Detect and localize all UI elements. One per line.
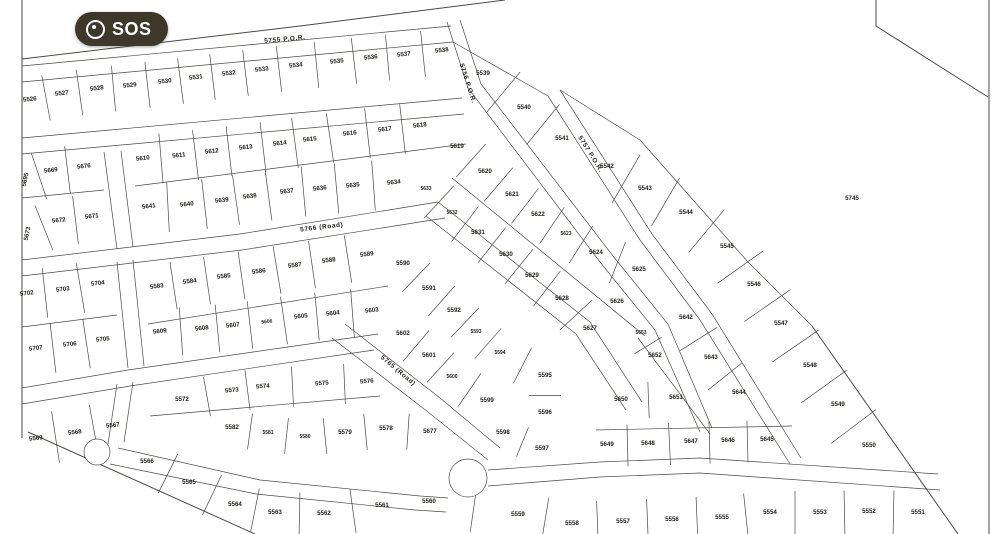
lot-divider — [291, 367, 293, 407]
lot-label-5614: 5614 — [273, 139, 288, 147]
lot-label-5650: 5650 — [614, 396, 628, 403]
lot-label-5560: 5560 — [422, 498, 436, 505]
lot-label-5593: 5593 — [470, 329, 481, 335]
lot-divider — [315, 293, 319, 341]
lot-divider — [276, 46, 281, 92]
lot-label-5600: 5600 — [446, 374, 457, 380]
sos-badge[interactable]: SOS — [75, 12, 168, 46]
lot-divider — [647, 499, 649, 534]
parcel-line — [560, 90, 801, 458]
lot-divider — [893, 491, 894, 534]
lot-label-5569: 5569 — [29, 434, 44, 442]
lot-label-5607: 5607 — [226, 321, 241, 329]
parcel-line — [118, 448, 448, 498]
lot-label-5610: 5610 — [136, 154, 151, 162]
lot-divider — [202, 179, 208, 229]
lot-label-5623: 5623 — [560, 231, 571, 237]
lot-label-5598: 5598 — [496, 429, 510, 436]
lot-label-5629: 5629 — [525, 272, 539, 279]
lot-label-5613: 5613 — [239, 143, 254, 151]
lot-label-5561: 5561 — [375, 502, 389, 509]
lot-label-5599: 5599 — [480, 397, 494, 404]
lot-label-5639: 5639 — [215, 196, 230, 204]
lot-label-5540: 5540 — [517, 104, 531, 111]
lot-label-5563: 5563 — [268, 509, 282, 516]
lot-label-5611: 5611 — [172, 151, 187, 159]
lot-label-5531: 5531 — [189, 73, 204, 81]
lot-label-5574: 5574 — [256, 382, 271, 390]
lot-label-5627: 5627 — [583, 325, 597, 332]
lot-label-5606: 5606 — [261, 318, 273, 325]
lot-label-5616: 5616 — [343, 129, 358, 137]
lot-divider — [243, 50, 249, 96]
lot-divider — [372, 161, 376, 211]
lot-label-5632: 5632 — [446, 210, 457, 216]
lot-divider — [597, 501, 599, 534]
lot-divider — [385, 35, 389, 81]
parcel-line — [124, 382, 133, 442]
lot-label-5537: 5537 — [397, 50, 412, 58]
lot-divider — [314, 42, 318, 88]
lot-divider — [232, 175, 239, 224]
lot-label-5587: 5587 — [288, 261, 303, 270]
lot-label-5572: 5572 — [175, 396, 189, 403]
lot-divider — [831, 410, 876, 444]
lot-label-5552: 5552 — [862, 508, 876, 515]
lot-divider — [251, 488, 260, 531]
lot-divider — [178, 58, 184, 104]
lot-divider — [247, 301, 253, 349]
lot-label-5594: 5594 — [494, 350, 505, 356]
lot-label-5583: 5583 — [150, 282, 165, 291]
lot-label-5631: 5631 — [471, 229, 485, 236]
lot-label-5676: 5676 — [77, 162, 92, 170]
lot-divider — [516, 427, 528, 457]
lot-divider — [292, 118, 299, 168]
lot-label-5702: 5702 — [20, 289, 35, 297]
lot-divider — [145, 62, 150, 108]
lot-label-5624: 5624 — [589, 249, 603, 256]
parcel-line — [28, 432, 255, 534]
parcel-line — [22, 190, 104, 198]
plat-map-stage: 5526552755285529553055315532553355345535… — [0, 0, 1000, 534]
lot-label-5544: 5544 — [679, 209, 693, 216]
lot-divider — [203, 475, 222, 515]
lot-label-5612: 5612 — [205, 147, 220, 155]
lot-divider — [52, 411, 60, 462]
lot-label-5707: 5707 — [29, 344, 44, 352]
parcel-line — [135, 144, 466, 186]
parcel-line — [121, 151, 133, 247]
parcel-line — [876, 0, 988, 97]
lot-divider — [487, 72, 520, 112]
lot-label-5590: 5590 — [396, 260, 410, 267]
road-label: 5765 (Road) — [379, 354, 417, 387]
lot-label-5576: 5576 — [360, 377, 375, 385]
lot-divider — [226, 126, 232, 176]
parcel-line — [812, 326, 958, 534]
lot-label-5530: 5530 — [158, 77, 173, 85]
lot-divider — [744, 494, 749, 534]
lot-label-5706: 5706 — [63, 340, 78, 348]
parcel-line — [22, 315, 117, 327]
lot-divider — [513, 348, 531, 384]
parcel-line — [488, 473, 940, 490]
lot-label-5745: 5745 — [845, 195, 859, 202]
lot-label-5651: 5651 — [669, 394, 683, 401]
lot-label-5551: 5551 — [911, 509, 925, 516]
lot-divider — [76, 263, 84, 312]
lot-label-5562: 5562 — [317, 510, 331, 517]
lot-divider — [689, 209, 725, 252]
lot-label-5672: 5672 — [52, 216, 67, 224]
lot-divider — [708, 363, 742, 390]
lot-label-5602: 5602 — [396, 330, 410, 337]
lot-divider — [50, 323, 56, 373]
lot-label-5643: 5643 — [704, 354, 718, 361]
lot-divider — [669, 423, 671, 465]
lot-label-5646: 5646 — [721, 437, 735, 444]
lot-label-5644: 5644 — [732, 389, 746, 396]
lot-label-5641: 5641 — [142, 202, 157, 210]
lot-label-5633: 5633 — [420, 186, 431, 192]
lot-label-5601: 5601 — [422, 352, 436, 359]
lot-label-5556: 5556 — [665, 516, 679, 523]
record-icon — [86, 20, 105, 39]
lot-label-5588: 5588 — [322, 256, 337, 265]
lot-divider — [627, 425, 628, 467]
lot-divider — [323, 418, 327, 454]
lot-label-5539: 5539 — [476, 70, 490, 77]
parcel-line — [22, 42, 453, 82]
lot-label-5578: 5578 — [379, 425, 393, 432]
lot-label-5605: 5605 — [294, 312, 309, 320]
lot-label-5615: 5615 — [303, 135, 318, 143]
lot-label-5703: 5703 — [56, 285, 71, 293]
lot-divider — [35, 206, 53, 251]
lot-label-5536: 5536 — [364, 53, 379, 61]
parcel-line — [332, 338, 488, 460]
lot-divider — [238, 252, 245, 300]
lot-divider — [179, 308, 182, 356]
lot-divider — [203, 377, 210, 416]
lot-label-5626: 5626 — [610, 298, 624, 305]
lot-label-5547: 5547 — [774, 320, 788, 327]
lot-label-5554: 5554 — [763, 509, 777, 516]
lot-divider — [111, 66, 115, 112]
lot-label-5567: 5567 — [106, 421, 121, 429]
lot-label-5582: 5582 — [225, 424, 239, 431]
lot-label-5546: 5546 — [747, 281, 761, 288]
lot-divider — [265, 171, 272, 221]
lot-divider — [326, 113, 333, 162]
lot-label-5608: 5608 — [195, 324, 210, 332]
lot-label-5584: 5584 — [183, 277, 198, 286]
lot-divider — [281, 297, 288, 344]
lot-label-5669: 5669 — [44, 166, 59, 174]
lot-label-5652: 5652 — [648, 352, 662, 359]
parcel-line — [560, 90, 640, 140]
lot-label-5591: 5591 — [422, 285, 436, 292]
parcel-line — [22, 218, 445, 276]
lot-divider — [299, 493, 300, 534]
lot-label-5581: 5581 — [262, 430, 273, 436]
lot-label-5704: 5704 — [91, 279, 106, 287]
lot-label-5535: 5535 — [330, 57, 345, 65]
cul-de-sac-circle — [84, 439, 110, 465]
lot-label-5541: 5541 — [555, 135, 569, 142]
lot-divider — [204, 257, 211, 304]
lot-label-5621: 5621 — [505, 191, 519, 198]
lot-divider — [245, 370, 250, 410]
sos-badge-label: SOS — [112, 19, 152, 40]
lot-label-5636: 5636 — [313, 184, 328, 192]
lot-divider — [301, 167, 306, 217]
lot-divider — [421, 31, 426, 77]
lot-label-5566: 5566 — [140, 458, 154, 465]
lot-label-5585: 5585 — [217, 272, 232, 281]
lot-label-5529: 5529 — [123, 81, 138, 89]
lot-label-5545: 5545 — [720, 243, 734, 250]
lot-divider — [772, 330, 818, 362]
lot-divider — [651, 178, 679, 226]
lot-divider — [170, 262, 177, 309]
map-labels: 5526552755285529553055315532553355345535… — [20, 12, 926, 527]
lot-label-5609: 5609 — [153, 327, 168, 335]
lot-divider — [844, 491, 845, 534]
lot-divider — [273, 246, 281, 293]
lot-label-5548: 5548 — [803, 362, 817, 369]
lot-divider — [648, 382, 649, 418]
lot-label-5596: 5596 — [538, 409, 552, 416]
lot-divider — [42, 268, 48, 318]
lot-label-5528: 5528 — [90, 84, 105, 92]
lot-label-5527: 5527 — [55, 89, 70, 97]
lot-divider — [351, 38, 356, 84]
parcel-line — [596, 426, 792, 430]
lot-divider — [718, 251, 764, 283]
lot-label-5649: 5649 — [600, 441, 614, 448]
lot-label-5580: 5580 — [299, 434, 310, 440]
lot-label-5575: 5575 — [315, 379, 330, 387]
lot-divider — [260, 122, 266, 172]
lot-divider — [344, 364, 346, 404]
lot-label-5642: 5642 — [679, 314, 693, 321]
lot-label-5620: 5620 — [478, 168, 492, 175]
lot-divider — [248, 414, 253, 450]
lot-divider — [609, 242, 625, 283]
lot-label-5589: 5589 — [360, 250, 375, 259]
lot-divider — [407, 414, 409, 450]
parcel-line — [22, 350, 374, 404]
lot-label-5637: 5637 — [280, 187, 295, 195]
lot-divider — [364, 414, 367, 450]
lot-label-5622: 5622 — [531, 211, 545, 218]
road-label: 5755 P.O.R. — [264, 34, 306, 45]
lot-label-5634: 5634 — [387, 178, 402, 186]
lot-label-5619: 5619 — [450, 143, 464, 150]
parcel-line — [488, 458, 938, 474]
lot-divider — [541, 498, 549, 534]
lot-divider — [83, 319, 90, 368]
lot-label-5618: 5618 — [413, 121, 428, 129]
lot-label-5603: 5603 — [365, 306, 380, 314]
lot-divider — [285, 418, 289, 454]
cul-de-sac-circle — [449, 459, 487, 497]
lot-label-5555: 5555 — [715, 514, 729, 521]
lot-divider — [334, 164, 339, 214]
parcel-line — [460, 20, 712, 428]
lot-label-5549: 5549 — [831, 401, 845, 408]
parcel-line — [117, 262, 128, 368]
lot-label-5640: 5640 — [180, 200, 195, 208]
lot-label-5648: 5648 — [641, 440, 655, 447]
lot-divider — [65, 146, 71, 194]
lot-label-5573: 5573 — [225, 386, 240, 394]
lot-divider — [192, 130, 198, 180]
lot-label-5645: 5645 — [760, 436, 774, 443]
lot-label-5653: 5653 — [635, 330, 646, 336]
lot-label-5705: 5705 — [96, 335, 111, 343]
parcel-line — [22, 98, 462, 138]
lot-divider — [696, 497, 698, 534]
plat-map: 5526552755285529553055315532553355345535… — [0, 0, 1000, 534]
parcel-line — [104, 152, 117, 249]
lot-divider — [744, 290, 790, 322]
lot-divider — [210, 54, 216, 100]
lot-label-5592: 5592 — [447, 307, 461, 314]
lot-label-5617: 5617 — [378, 125, 393, 133]
lot-label-5677: 5677 — [423, 428, 437, 435]
lot-divider — [215, 305, 220, 353]
lot-label-5586: 5586 — [252, 267, 267, 276]
lot-label-5635: 5635 — [346, 181, 361, 189]
lot-label-5526: 5526 — [23, 95, 38, 103]
lot-label-5559: 5559 — [511, 511, 525, 518]
lot-divider — [158, 454, 178, 493]
lot-divider — [458, 374, 481, 407]
parcel-line — [108, 384, 117, 444]
lot-divider — [569, 226, 593, 263]
lot-label-5553: 5553 — [813, 509, 827, 516]
lot-label-5597: 5597 — [535, 445, 549, 452]
lot-label-5538: 5538 — [435, 46, 450, 54]
lot-label-5628: 5628 — [555, 295, 569, 302]
lot-divider — [400, 104, 406, 154]
lot-divider — [73, 196, 79, 244]
lot-label-5595: 5595 — [538, 372, 552, 379]
lot-divider — [309, 241, 316, 288]
lot-label-5532: 5532 — [222, 69, 237, 77]
lot-label-5625: 5625 — [632, 266, 646, 273]
lot-label-5671: 5671 — [85, 212, 100, 220]
lot-label-5604: 5604 — [326, 309, 341, 317]
road-label: 5757 P.O.R. — [576, 135, 604, 174]
lot-divider — [612, 155, 640, 203]
lot-divider — [31, 153, 46, 199]
lot-label-5557: 5557 — [616, 518, 630, 525]
lot-label-5638: 5638 — [243, 192, 258, 200]
parcel-line — [133, 260, 144, 366]
lot-label-5558: 5558 — [565, 520, 579, 527]
lot-label-5564: 5564 — [228, 501, 242, 508]
lot-divider — [42, 75, 50, 120]
lot-label-5543: 5543 — [638, 185, 652, 192]
lot-label-5565: 5565 — [182, 479, 196, 486]
lot-label-5647: 5647 — [684, 438, 698, 445]
lot-label-5579: 5579 — [338, 429, 352, 436]
lot-label-5630: 5630 — [499, 251, 513, 258]
lot-divider — [801, 370, 846, 403]
lot-divider — [350, 489, 356, 533]
lot-divider — [344, 235, 351, 282]
lot-label-5568: 5568 — [68, 428, 83, 436]
lot-label-5533: 5533 — [255, 65, 270, 73]
lot-label-5550: 5550 — [862, 442, 876, 449]
lot-divider — [167, 182, 170, 232]
parcel-line — [640, 140, 812, 326]
lot-divider — [365, 108, 371, 158]
lot-label-5673: 5673 — [23, 226, 33, 241]
lot-label-5534: 5534 — [289, 61, 304, 69]
